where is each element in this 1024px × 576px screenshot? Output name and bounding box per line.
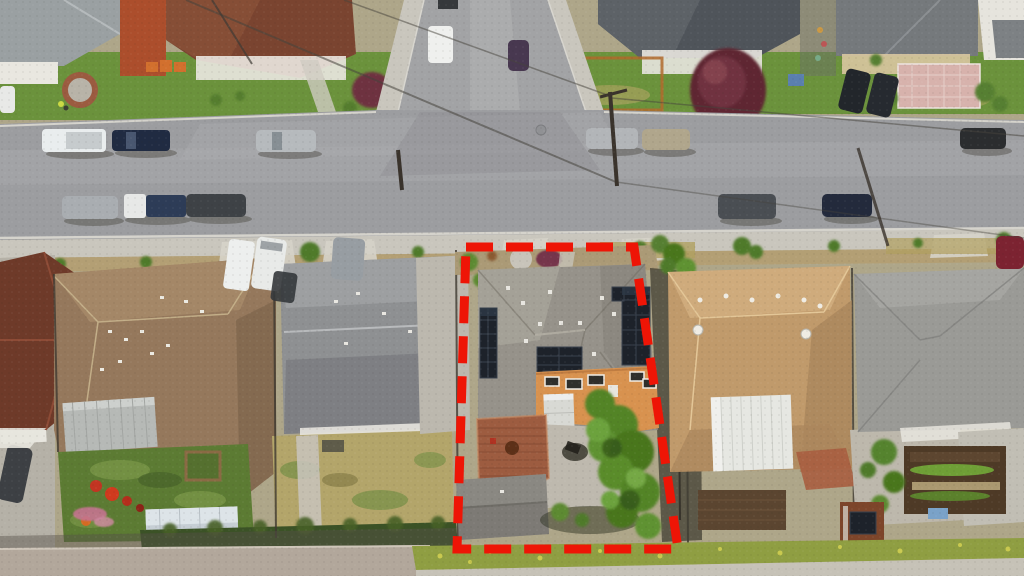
aerial-photo-stage	[0, 0, 1024, 576]
photo-grain	[0, 0, 1024, 576]
aerial-photo	[0, 0, 1024, 576]
